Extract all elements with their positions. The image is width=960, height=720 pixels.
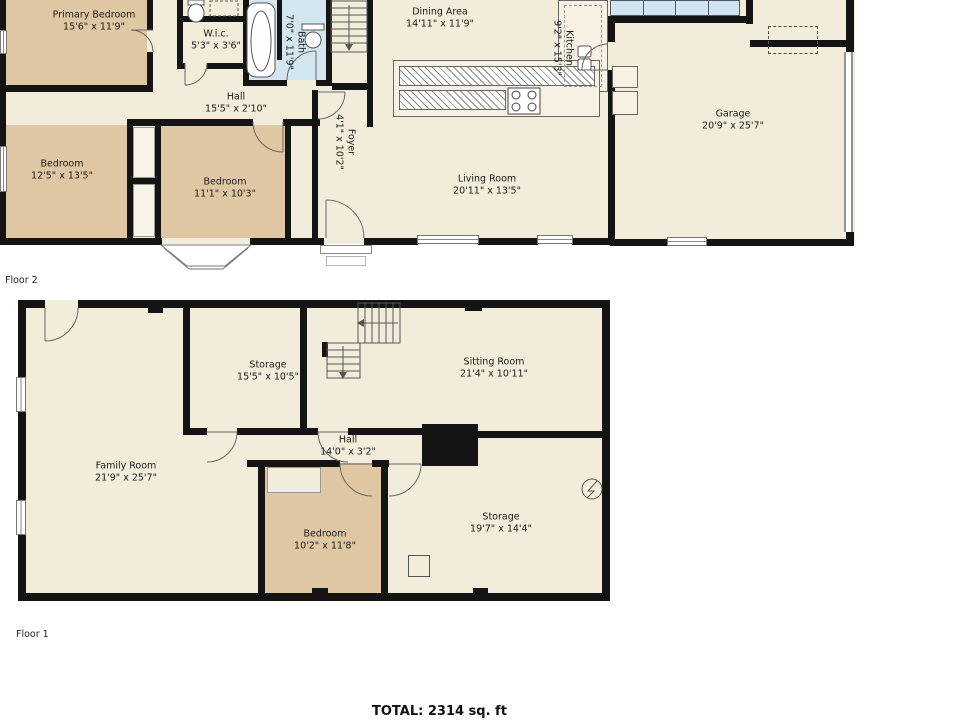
wall — [265, 460, 340, 467]
wall — [147, 52, 153, 92]
wall — [18, 412, 26, 500]
wall — [478, 238, 538, 245]
wall — [18, 535, 26, 600]
room-label-storage-upper: Storage15'5" x 10'5" — [237, 360, 299, 385]
room-label-bedroom-left: Bedroom12'5" x 13'5" — [31, 159, 93, 184]
room-label-dining-area: Dining Area14'11" x 11'9" — [406, 7, 474, 32]
room-label-family-room: Family Room21'9" x 25'7" — [95, 461, 157, 486]
room-label-wic: W.i.c.5'3" x 3'6" — [191, 29, 241, 54]
wall-stub — [473, 588, 488, 595]
room-label-living-room: Living Room20'11" x 13'5" — [453, 174, 521, 199]
room-label-hall-floor1: Hall14'0" x 3'2" — [320, 435, 376, 460]
wall — [258, 460, 265, 595]
kitchen-island-hatch — [399, 90, 506, 110]
window-mullion — [675, 1, 676, 15]
room-label-kitchen: Kitchen9'2" x 15'3" — [550, 20, 575, 76]
wall — [243, 80, 287, 86]
wall — [285, 122, 291, 240]
window-mullion — [643, 1, 644, 15]
room-label-bath: Bath7'0" x 11'9" — [282, 14, 307, 70]
wall — [332, 83, 373, 90]
window — [0, 30, 7, 54]
room-label-storage-lower: Storage19'7" x 14'4" — [470, 512, 532, 537]
wall — [300, 300, 307, 430]
window — [16, 377, 26, 412]
wall-stub — [148, 300, 163, 313]
floor2-caption: Floor 2 — [5, 275, 38, 286]
wall — [0, 238, 162, 245]
wall — [18, 300, 26, 378]
front-step — [326, 256, 366, 266]
wall — [746, 0, 753, 24]
wall — [604, 16, 746, 23]
wall — [177, 16, 183, 69]
window — [537, 235, 573, 244]
wall — [572, 238, 610, 245]
room-label-garage: Garage20'9" x 25'7" — [702, 109, 764, 134]
room-label-primary-bedroom: Primary Bedroom15'6" x 11'9" — [53, 10, 136, 35]
total-area-label: TOTAL: 2314 sq. ft — [372, 704, 507, 719]
wall — [381, 460, 388, 595]
wall — [177, 16, 249, 22]
wall — [364, 238, 418, 245]
attic-access-dashed — [768, 26, 818, 54]
garage-shelf — [612, 66, 638, 88]
wall — [183, 300, 190, 433]
wall — [0, 85, 153, 92]
wall — [367, 0, 373, 127]
window-mullion — [708, 1, 709, 15]
wall — [237, 428, 318, 435]
window — [16, 500, 26, 535]
room-label-bedroom-floor1: Bedroom10'2" x 11'8" — [294, 529, 356, 554]
wall — [608, 22, 615, 42]
bedroom-closet — [267, 467, 321, 493]
wall — [250, 238, 324, 245]
window-band — [610, 0, 740, 16]
wall — [610, 239, 668, 246]
wall — [846, 232, 854, 246]
floor1-caption: Floor 1 — [16, 629, 49, 640]
room-label-bedroom-mid: Bedroom11'1" x 10'3" — [194, 177, 256, 202]
wall — [322, 342, 328, 357]
wall — [326, 0, 332, 86]
closet-between-bedrooms-top — [133, 127, 155, 178]
wall — [316, 80, 332, 86]
wall — [183, 428, 207, 435]
garage-door-opening — [844, 52, 853, 232]
window — [667, 237, 707, 246]
wall — [127, 119, 253, 126]
garage-shelf — [612, 91, 638, 115]
wall — [706, 239, 852, 246]
room-label-hall-floor2: Hall15'5" x 2'10" — [205, 92, 267, 117]
wall — [177, 63, 185, 69]
wall — [602, 300, 610, 600]
window — [0, 146, 7, 192]
front-porch — [320, 245, 372, 254]
wall — [312, 90, 318, 240]
wall — [147, 0, 153, 30]
bay-window — [161, 245, 251, 269]
wall-stub — [465, 300, 482, 311]
window — [417, 235, 479, 244]
room-label-foyer: Foyer4'1" x 10'2" — [332, 114, 357, 170]
closet-between-bedrooms-bottom — [133, 184, 155, 237]
utility-box — [408, 555, 430, 577]
room-label-sitting-room: Sitting Room21'4" x 10'11" — [460, 357, 528, 382]
wall — [243, 0, 249, 86]
wall — [478, 431, 604, 438]
chimney — [422, 424, 478, 466]
floorplan-canvas: Primary Bedroom15'6" x 11'9" W.i.c.5'3" … — [0, 0, 960, 720]
wall-stub — [312, 588, 328, 595]
